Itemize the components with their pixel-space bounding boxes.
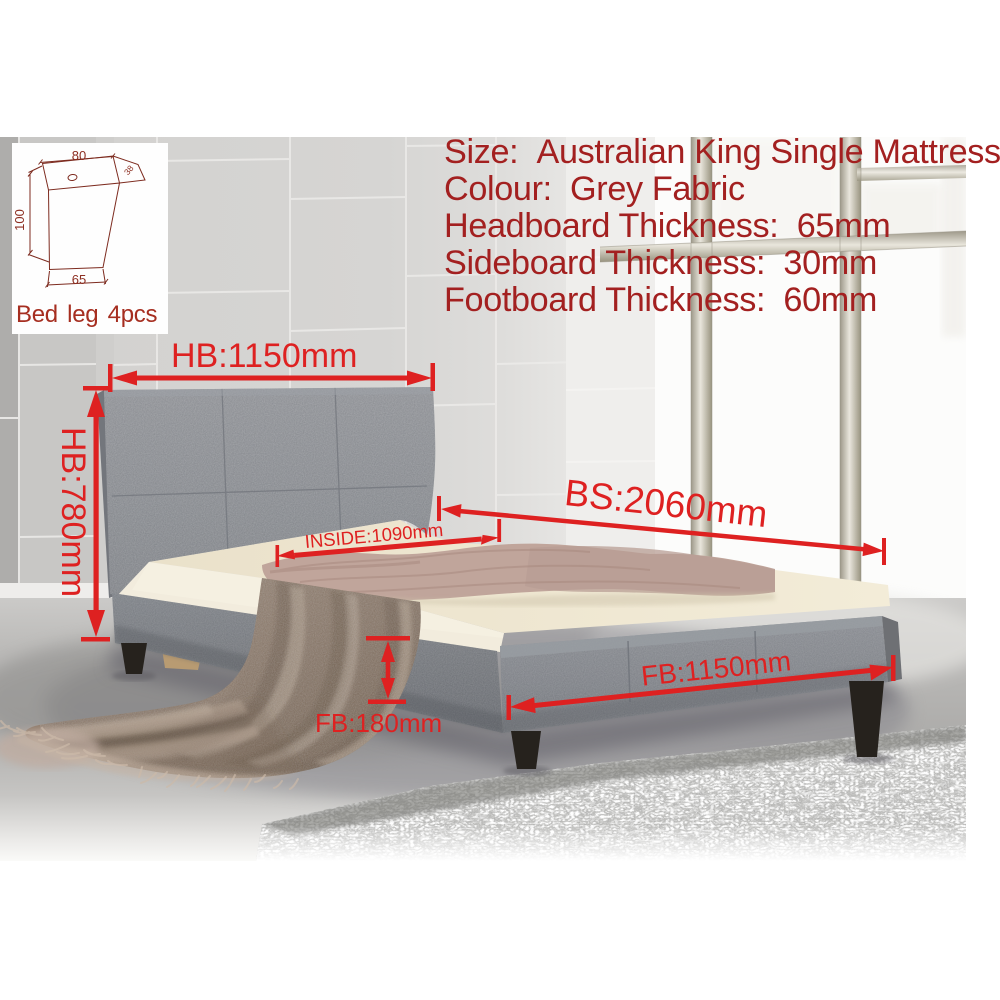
- svg-text:Footboard Thickness: 60mm: Footboard Thickness: 60mm: [444, 281, 877, 319]
- svg-text:FB:180mm: FB:180mm: [315, 708, 442, 738]
- svg-text:80: 80: [72, 148, 86, 163]
- svg-text:Sideboard Thickness: 30mm: Sideboard Thickness: 30mm: [444, 244, 877, 282]
- svg-text:Size: Australian King Single: Size: Australian King Single Mattress: [444, 133, 1000, 171]
- svg-text:Bed leg 4pcs: Bed leg 4pcs: [16, 301, 157, 328]
- svg-text:65: 65: [72, 272, 86, 287]
- svg-text:HB:1150mm: HB:1150mm: [171, 337, 357, 375]
- svg-text:HB:780mm: HB:780mm: [54, 427, 92, 597]
- svg-text:100: 100: [12, 209, 27, 231]
- svg-text:Colour: Grey Fabric: Colour: Grey Fabric: [444, 170, 745, 208]
- svg-text:Headboard Thickness: 65mm: Headboard Thickness: 65mm: [444, 207, 890, 245]
